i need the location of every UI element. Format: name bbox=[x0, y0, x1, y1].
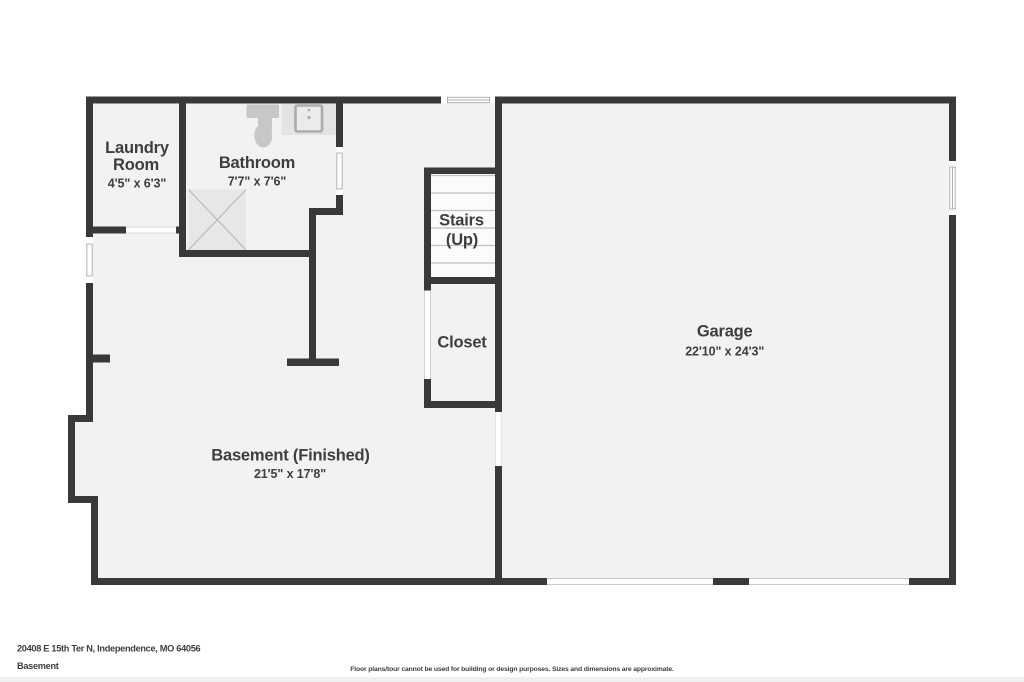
svg-text:Room: Room bbox=[113, 156, 159, 174]
svg-text:Floor plans/tour cannot be use: Floor plans/tour cannot be used for buil… bbox=[350, 666, 674, 673]
svg-text:Stairs: Stairs bbox=[439, 212, 484, 230]
svg-text:7'7" x 7'6": 7'7" x 7'6" bbox=[228, 175, 287, 189]
svg-text:Basement: Basement bbox=[17, 661, 59, 671]
svg-text:4'5" x 6'3": 4'5" x 6'3" bbox=[108, 177, 167, 191]
svg-text:Closet: Closet bbox=[437, 334, 487, 352]
svg-text:20408 E 15th Ter N, Independen: 20408 E 15th Ter N, Independence, MO 640… bbox=[17, 644, 201, 654]
svg-text:Bathroom: Bathroom bbox=[219, 154, 295, 172]
svg-text:22'10" x 24'3": 22'10" x 24'3" bbox=[685, 345, 764, 359]
svg-text:(Up): (Up) bbox=[446, 231, 478, 249]
svg-text:Laundry: Laundry bbox=[105, 139, 170, 157]
svg-text:21'5" x 17'8": 21'5" x 17'8" bbox=[254, 467, 326, 481]
svg-text:Garage: Garage bbox=[697, 323, 753, 341]
svg-text:Basement (Finished): Basement (Finished) bbox=[211, 447, 369, 465]
